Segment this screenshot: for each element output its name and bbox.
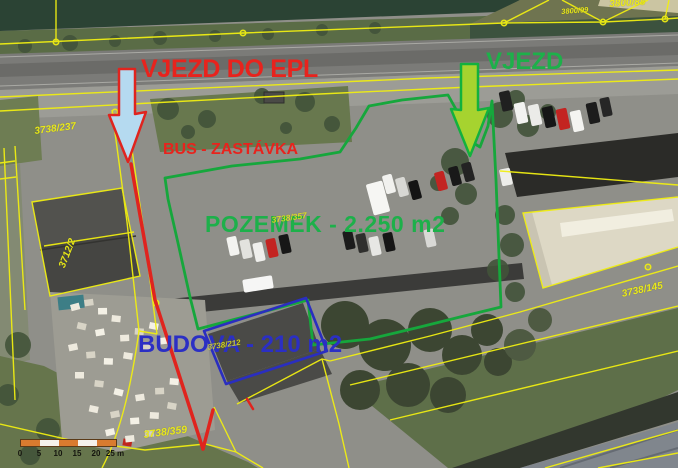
- pallet: [84, 299, 94, 307]
- bus-stop-label: BUS - ZASTÁVKA: [163, 142, 298, 158]
- pallet: [155, 388, 164, 395]
- scale-tick-label: 10: [54, 449, 63, 458]
- scale-segment: [78, 440, 97, 446]
- pallet: [125, 435, 135, 442]
- scale-segment: [59, 440, 78, 446]
- entrance-label: VJEZD: [486, 50, 563, 74]
- scale-tick-label: 15: [73, 449, 82, 458]
- scale-segment: [40, 440, 59, 446]
- scale-tick-label: 5: [37, 449, 41, 458]
- pallet: [120, 335, 129, 342]
- scale-tick-label: 25 m: [106, 449, 124, 458]
- pallet: [94, 380, 104, 388]
- aerial-map: VJEZD DO EPL VJEZD BUS - ZASTÁVKA POZEME…: [0, 0, 678, 468]
- pallet: [104, 358, 113, 365]
- pallet: [169, 378, 179, 385]
- entrance-epl-label: VJEZD DO EPL: [141, 57, 318, 82]
- scale-tick-label: 0: [18, 449, 22, 458]
- pallet: [86, 351, 96, 358]
- land-area-label: POZEMEK - 2.250 m2: [205, 213, 445, 236]
- pallet: [135, 394, 145, 402]
- pallet: [130, 417, 139, 424]
- pallet: [123, 352, 133, 360]
- pallet: [98, 308, 107, 315]
- scale-segment: [21, 440, 40, 446]
- parcel-label: 3800/99: [561, 6, 589, 15]
- scale-tick-label: 20: [92, 449, 101, 458]
- pallet: [111, 315, 121, 322]
- scale-segment: [97, 440, 116, 446]
- pallet: [75, 372, 84, 379]
- pallet: [150, 412, 159, 419]
- scale-bar: [20, 439, 117, 447]
